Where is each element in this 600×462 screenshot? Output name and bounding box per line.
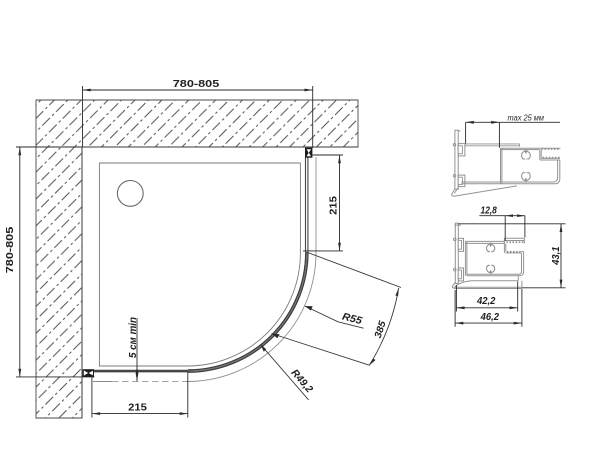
svg-text:215: 215: [328, 196, 339, 215]
svg-text:780-805: 780-805: [5, 226, 16, 273]
svg-text:12,8: 12,8: [481, 205, 498, 216]
svg-text:max 25 мм: max 25 мм: [507, 113, 544, 123]
svg-text:215: 215: [128, 403, 147, 414]
svg-text:5 см min: 5 см min: [128, 317, 139, 358]
svg-text:R55: R55: [341, 312, 363, 328]
svg-text:780-805: 780-805: [173, 79, 220, 90]
svg-text:42,2: 42,2: [476, 296, 496, 307]
svg-text:46,2: 46,2: [480, 312, 500, 323]
svg-text:385: 385: [373, 319, 389, 340]
svg-text:43,1: 43,1: [551, 246, 562, 265]
